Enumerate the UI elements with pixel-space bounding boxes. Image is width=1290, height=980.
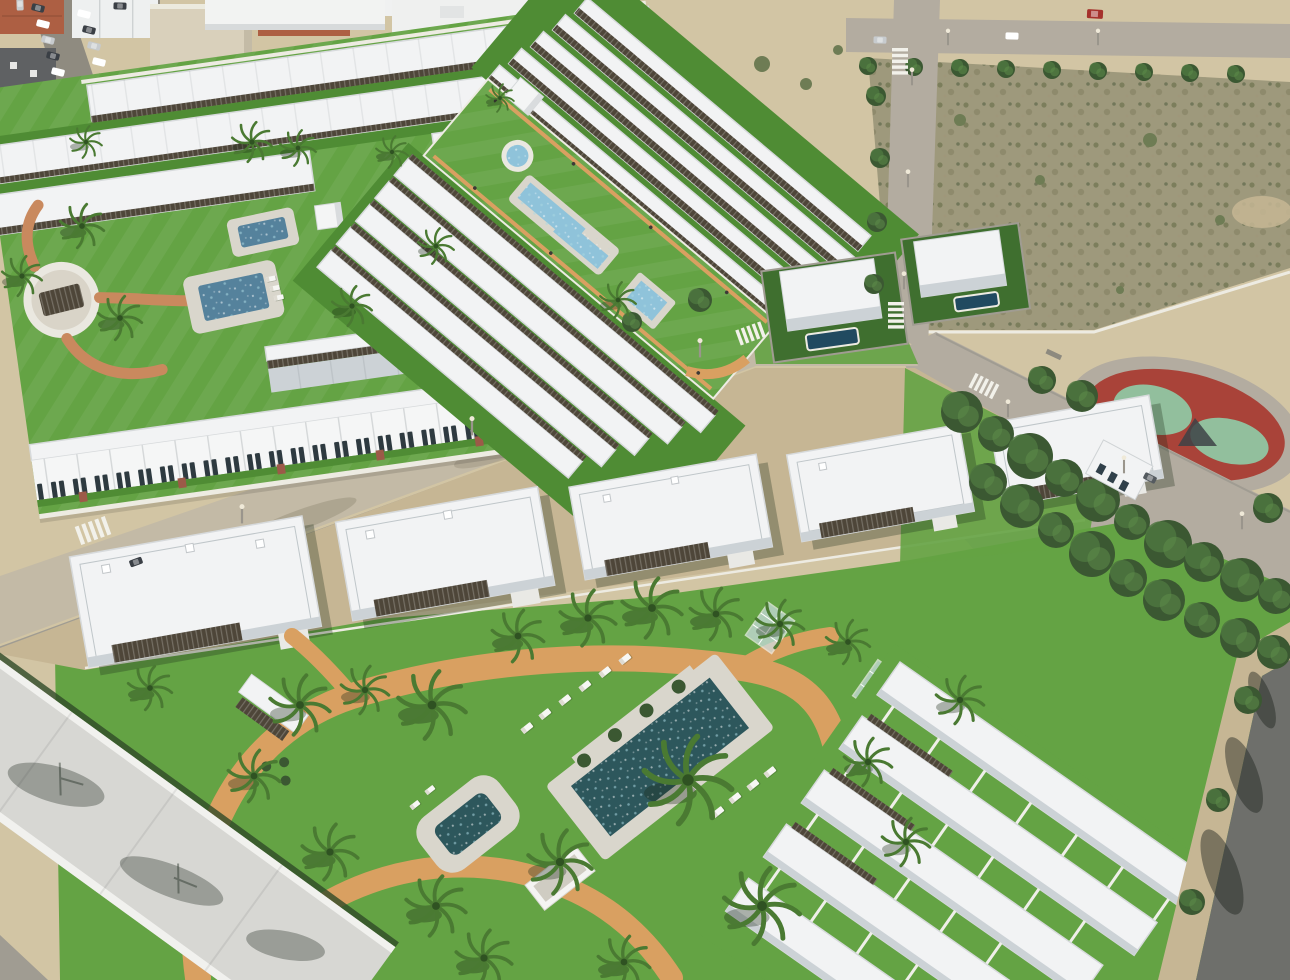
red-van (1087, 9, 1103, 19)
aerial-render (0, 0, 1290, 980)
render-canvas (0, 0, 1290, 980)
terracotta-roof-building (0, 0, 64, 34)
